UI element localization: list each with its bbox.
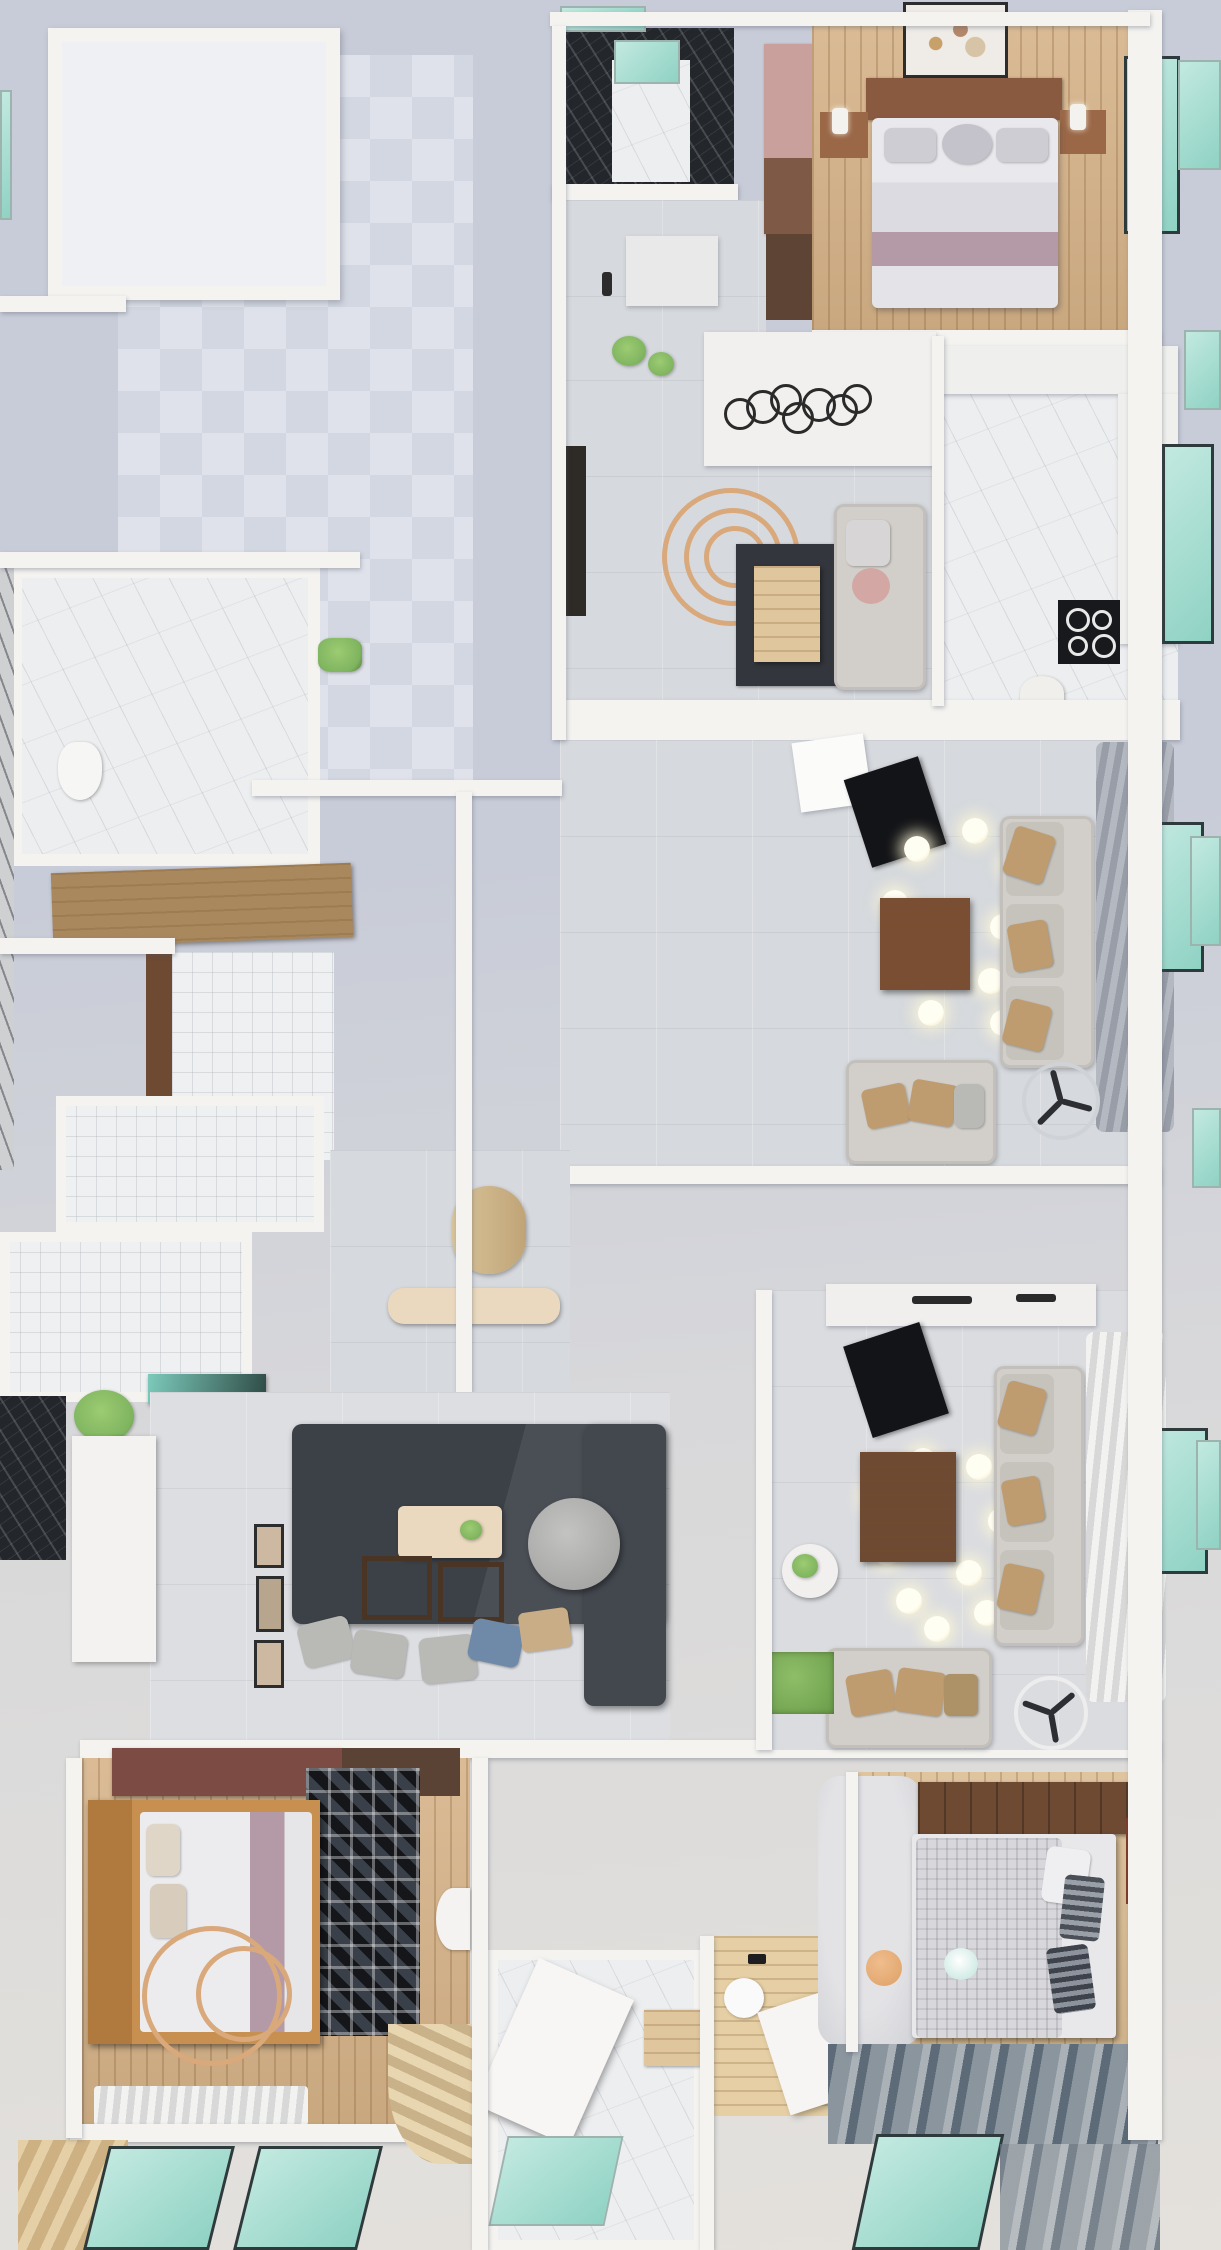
skylight-pool-1 [83, 2146, 235, 2250]
living-b-side-table [782, 1544, 838, 1598]
foyer-floor [330, 1150, 570, 1420]
window-box-right-1 [1178, 60, 1221, 170]
perimeter-wall-right [1128, 10, 1162, 2140]
suite-room-floor [10, 566, 320, 866]
kitchen-window [1162, 444, 1214, 644]
bedroom-br-peach-pouf [866, 1950, 902, 1986]
living-b-pillow-2 [1000, 1475, 1045, 1527]
living-b-loveseat [826, 1648, 992, 1748]
shower-glass [614, 40, 680, 84]
ring-chandelier [724, 384, 874, 434]
suite-divider-wall [0, 938, 175, 954]
bedroom-bl-left-wall [66, 1758, 82, 2138]
foyer-bench [388, 1288, 560, 1324]
hallway-door-white [626, 236, 718, 306]
bath-c-stool [644, 2010, 702, 2066]
bedroom-br-duvet [916, 1838, 1062, 2038]
suite-vanity-counter [51, 863, 353, 947]
window-box-right-2 [1184, 330, 1221, 410]
suite-left-wall [0, 560, 14, 1170]
bath-divider-wall-2 [700, 1936, 714, 2250]
louvered-deck [828, 2044, 1158, 2144]
bedroom-bl-pillow-1 [146, 1824, 180, 1876]
floorplan-render [0, 0, 1221, 2250]
dining-plant-1 [612, 336, 646, 366]
terrace-left-wall [0, 296, 126, 312]
suite-toilet [58, 742, 102, 800]
bedroom-br-headboard [918, 1782, 1128, 1834]
dining-armchair-pillow [846, 520, 890, 566]
lounge-frame-table-1 [362, 1556, 432, 1620]
living-a-coffee-table [880, 898, 970, 990]
utility-plant-1 [74, 1390, 134, 1442]
window-box-right-4 [1192, 1108, 1221, 1188]
living-a-ceiling-fan [1022, 1062, 1100, 1140]
living-b-left-wall [756, 1290, 772, 1750]
perimeter-wall-top [550, 12, 1150, 26]
lounge-tray-table [398, 1506, 502, 1558]
bathroom-top-southwall [552, 184, 738, 200]
mid-vertical-wall-2 [932, 336, 944, 706]
living-a-loveseat [846, 1060, 996, 1164]
mid-vertical-wall-1 [552, 26, 566, 740]
utility-marble-corner [0, 1396, 66, 1560]
utility-room-a [56, 1096, 324, 1232]
bath-d-faucet [748, 1954, 766, 1964]
lounge-white-cabinet [72, 1436, 156, 1662]
window-left-edge [0, 90, 12, 220]
bed-tr-lamp-left [832, 108, 848, 134]
bedroom-bl-ring-decor-2 [196, 1946, 292, 2042]
empty-room-top-left [48, 28, 340, 300]
louvered-deck-lower [1000, 2144, 1160, 2250]
bedroom-br-left-wall [846, 1772, 858, 2052]
suite-top-wall [0, 552, 360, 568]
stairs [388, 2024, 476, 2164]
pool-bottom-right [852, 2134, 1005, 2250]
bed-tr-pillow-3 [996, 128, 1048, 162]
bedroom-bl-pillow-2 [150, 1884, 186, 1938]
bed-tr-pillow-1 [884, 128, 936, 162]
lounge-pouf [528, 1498, 620, 1590]
bath-c-skylight [488, 2136, 623, 2226]
window-box-right-3 [1190, 836, 1221, 946]
bed-tr-headboard [866, 78, 1062, 120]
lounge-frame-table-2 [438, 1562, 504, 1622]
living-b-coffee-table [860, 1452, 956, 1562]
bath-divider-wall-1 [472, 1758, 488, 2250]
bed-tr-lamp-right [1070, 104, 1086, 130]
lounge-tan-pillow [517, 1607, 572, 1654]
dining-table [754, 566, 820, 662]
bedroom-br-pillow-striped-2 [1046, 1943, 1097, 2014]
living-b-grass-patch [768, 1652, 834, 1714]
dining-console-dark [566, 446, 586, 616]
bedroom-bl-mosaic-rug [306, 1768, 420, 2036]
lounge-pillow-2 [349, 1628, 409, 1679]
foyer-top-wall [252, 780, 562, 796]
bedroom-bl-round-table [436, 1888, 470, 1950]
lounge-gallery-frames [254, 1524, 292, 1692]
window-box-right-5 [1196, 1440, 1221, 1550]
bed-tr-pillow-2 [942, 124, 992, 164]
suite-green-towel [318, 638, 362, 672]
corridor-spine-wall [456, 792, 472, 1392]
bedroom-br-teal-ball [944, 1948, 978, 1980]
bedroom-br-pillow-striped-1 [1059, 1874, 1105, 1942]
kitchen-living-divider [560, 700, 1180, 740]
wardrobe-dark-lower [766, 234, 812, 320]
skylight-pool-2 [233, 2146, 383, 2250]
dining-plant-2 [648, 352, 674, 376]
bedroom-br-rug [818, 1776, 922, 2046]
wardrobe-mauve-brown [764, 44, 812, 234]
dining-pink-pillow [852, 568, 890, 604]
bedroom-bl-curtain [94, 2086, 308, 2126]
kitchen-hob-black [1058, 600, 1120, 664]
wall-sconce [602, 272, 612, 296]
living-b-kitchenette [826, 1284, 1096, 1326]
living-b-ceiling-fan [1014, 1676, 1088, 1750]
living-a-pillow-2 [1006, 919, 1054, 973]
